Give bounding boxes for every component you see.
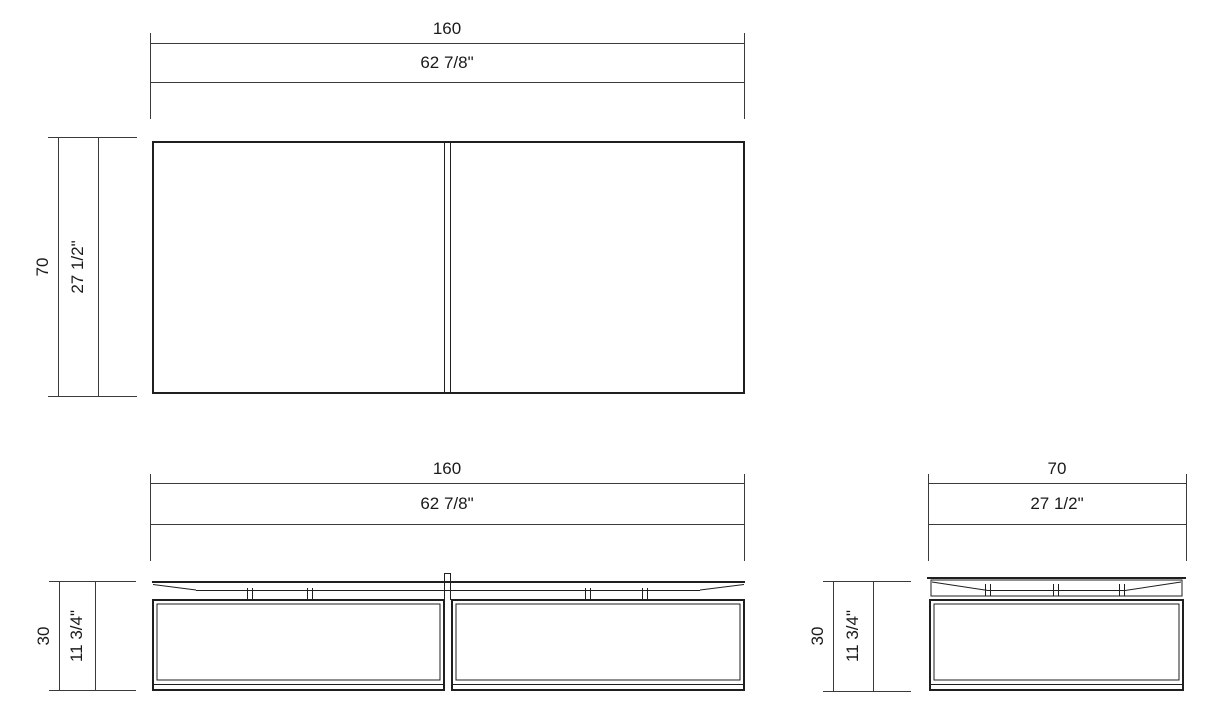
front-center-seam [444, 573, 451, 600]
plan-depth-in-label: 27 1/2" [68, 207, 88, 327]
plan-center-seam [445, 143, 451, 392]
front-right-cabinet-body [452, 600, 744, 690]
side-height-cm-label: 30 [808, 576, 828, 696]
side-height-in-label: 11 3/4" [843, 576, 863, 696]
plan-depth-dimension [48, 138, 137, 397]
front-width-in-label: 62 7/8" [347, 494, 547, 514]
side-height-dimension [823, 582, 911, 692]
plan-depth-cm-label: 70 [33, 207, 53, 327]
plan-width-in-label: 62 7/8" [347, 53, 547, 73]
front-height-in-label: 11 3/4" [67, 576, 87, 696]
side-width-in-label: 27 1/2" [957, 494, 1157, 514]
front-width-dimension [151, 474, 745, 561]
plan-tabletop-outline [153, 142, 744, 393]
side-width-dimension [929, 474, 1187, 561]
front-height-dimension [49, 582, 136, 691]
side-cabinet-body [930, 600, 1183, 690]
front-height-cm-label: 30 [34, 576, 54, 696]
plan-width-dimension [151, 33, 745, 119]
side-width-cm-label: 70 [957, 459, 1157, 479]
side-tabletop-profile [927, 578, 1186, 596]
front-tabletop-profile [152, 582, 745, 591]
technical-drawing-canvas: 160 62 7/8" 70 27 1/2" 160 62 7/8" 30 11… [0, 0, 1227, 716]
plan-width-cm-label: 160 [347, 19, 547, 39]
front-left-cabinet-body [153, 600, 444, 690]
drawing-linework [0, 0, 1227, 716]
front-width-cm-label: 160 [347, 459, 547, 479]
front-support-clips [248, 588, 648, 599]
